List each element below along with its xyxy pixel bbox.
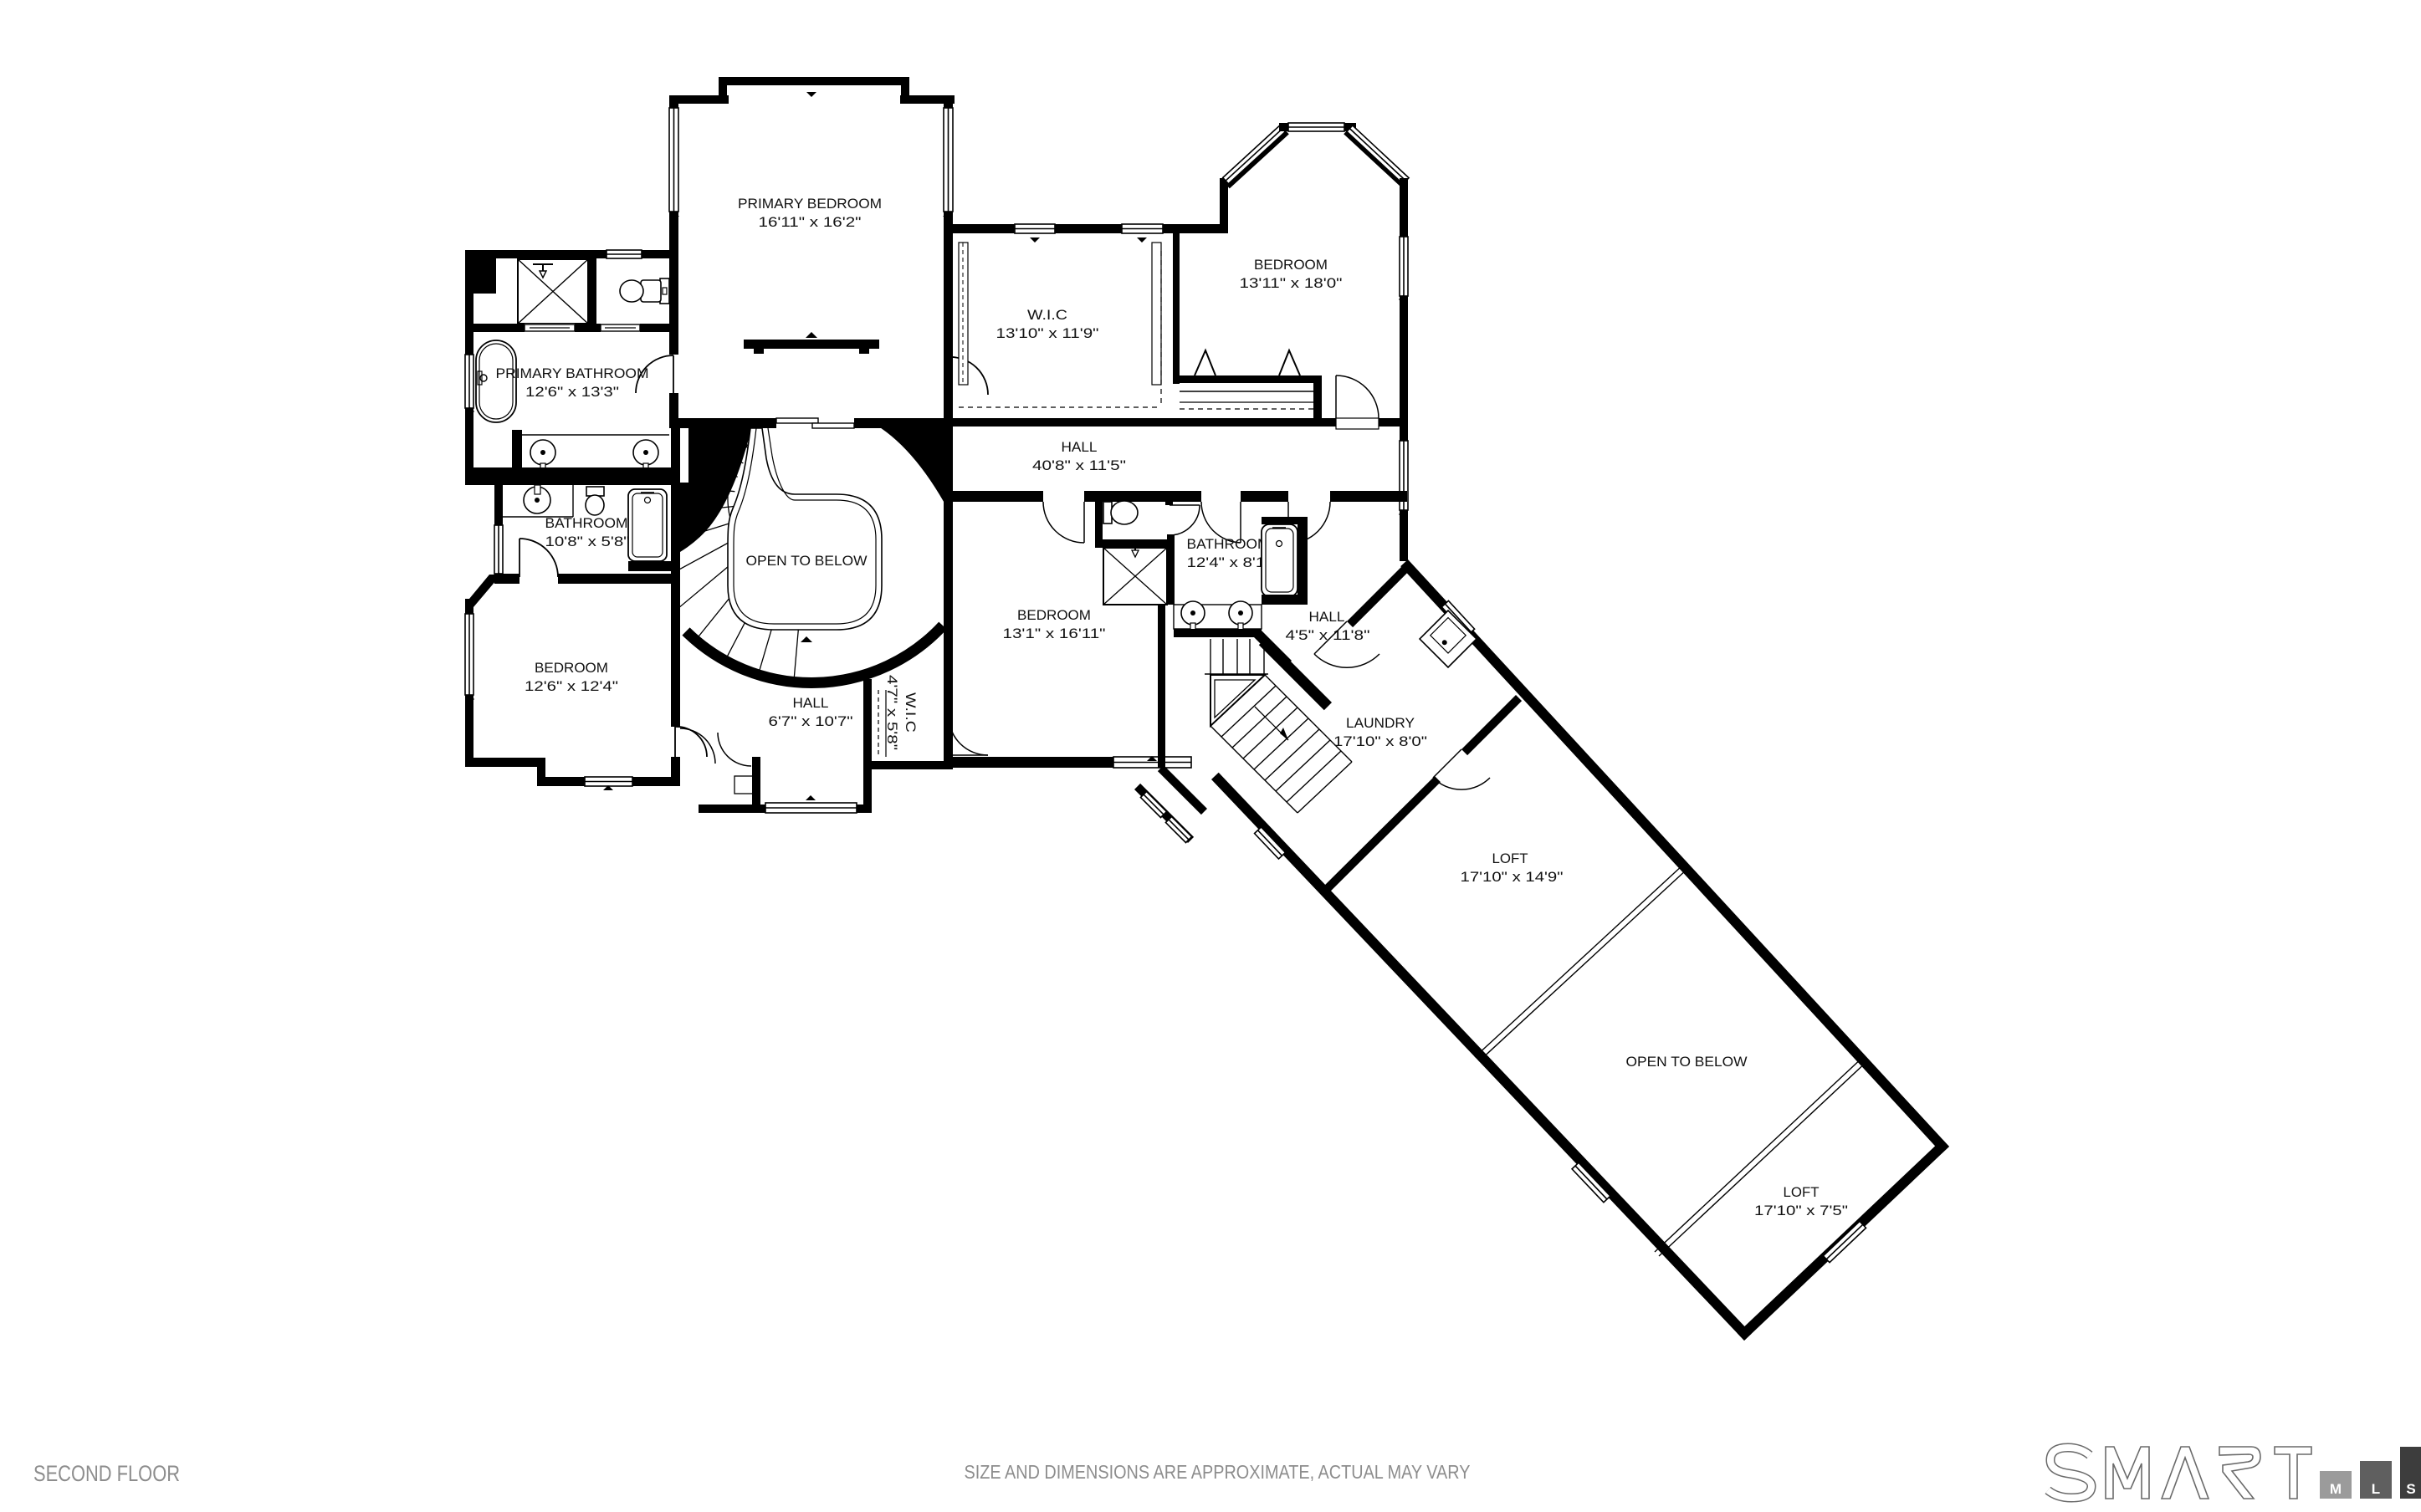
svg-text:SIZE AND DIMENSIONS ARE APPROX: SIZE AND DIMENSIONS ARE APPROXIMATE, ACT… [965,1461,1471,1483]
svg-text:40'8" x 11'5": 40'8" x 11'5" [1032,457,1126,473]
svg-text:SECOND FLOOR: SECOND FLOOR [33,1461,180,1486]
svg-text:LAUNDRY: LAUNDRY [1346,715,1415,731]
svg-text:PRIMARY BATHROOM: PRIMARY BATHROOM [496,365,649,381]
svg-text:BEDROOM: BEDROOM [1254,257,1328,273]
svg-text:10'8" x 5'8": 10'8" x 5'8" [545,534,630,549]
svg-text:17'10" x 8'0": 17'10" x 8'0" [1333,733,1427,749]
svg-text:OPEN TO BELOW: OPEN TO BELOW [1626,1054,1748,1070]
svg-text:4'7" x 5'8": 4'7" x 5'8" [884,675,900,750]
svg-text:L: L [2372,1481,2380,1497]
svg-text:17'10" x 14'9": 17'10" x 14'9" [1461,869,1564,885]
svg-text:W.I.C: W.I.C [1027,307,1067,323]
svg-text:16'11" x 16'2": 16'11" x 16'2" [759,214,862,230]
svg-text:M: M [2330,1481,2342,1497]
svg-text:OPEN TO BELOW: OPEN TO BELOW [746,553,868,569]
svg-text:LOFT: LOFT [1492,850,1528,866]
svg-text:12'6" x 13'3": 12'6" x 13'3" [525,384,619,400]
svg-text:S: S [2406,1481,2415,1497]
svg-text:BEDROOM: BEDROOM [535,660,608,676]
svg-text:17'10" x 7'5": 17'10" x 7'5" [1754,1203,1848,1218]
svg-text:BEDROOM: BEDROOM [1017,607,1091,623]
svg-text:HALL: HALL [793,695,829,711]
svg-text:BATHROOM: BATHROOM [545,515,628,531]
svg-text:HALL: HALL [1062,439,1098,455]
svg-text:W.I.C: W.I.C [903,692,919,733]
svg-text:12'4" x 8'1": 12'4" x 8'1" [1187,554,1272,570]
svg-text:6'7" x 10'7": 6'7" x 10'7" [769,713,853,729]
svg-text:13'1" x 16'11": 13'1" x 16'11" [1003,626,1106,641]
svg-text:12'6" x 12'4": 12'6" x 12'4" [525,678,618,694]
svg-text:13'10" x 11'9": 13'10" x 11'9" [996,325,1099,341]
svg-text:BATHROOM: BATHROOM [1187,536,1270,552]
svg-text:13'11" x 18'0": 13'11" x 18'0" [1240,275,1343,291]
svg-text:LOFT: LOFT [1784,1184,1820,1200]
svg-text:PRIMARY BEDROOM: PRIMARY BEDROOM [738,196,882,212]
svg-text:HALL: HALL [1309,609,1345,625]
